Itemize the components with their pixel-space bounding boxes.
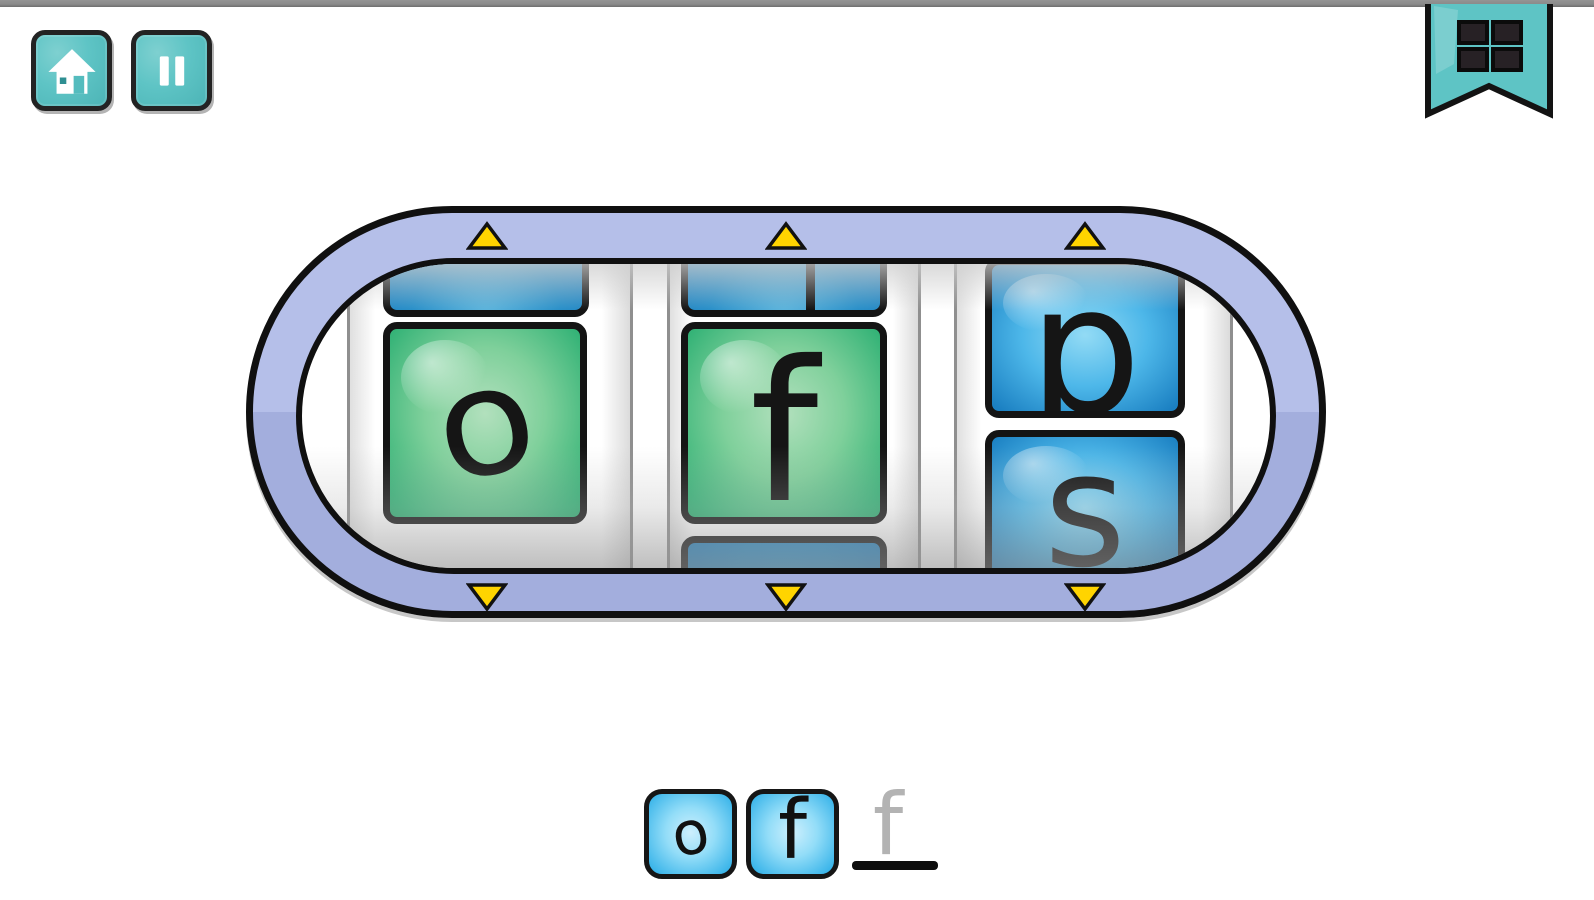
- reel1-down-arrow-button[interactable]: [466, 582, 508, 612]
- reel1-partial-tile-top[interactable]: [383, 258, 589, 317]
- down-arrow-icon: [765, 582, 807, 612]
- reel2-partial-tile-top[interactable]: [681, 258, 887, 317]
- reel3-up-arrow-button[interactable]: [1064, 221, 1106, 251]
- down-arrow-icon: [466, 582, 508, 612]
- answer-letter-1: o: [667, 801, 714, 866]
- hint-letter: f: [852, 782, 924, 868]
- home-button[interactable]: [31, 30, 112, 111]
- bookmark-menu-button[interactable]: [1424, 4, 1554, 124]
- game-screen: o f p s: [0, 0, 1594, 900]
- reel3-letter-bottom: s: [1044, 432, 1126, 574]
- reel-window: o f p s: [296, 258, 1276, 574]
- answer-letter-2: f: [778, 790, 807, 872]
- pause-icon: [146, 45, 198, 97]
- reel-wall: [918, 264, 921, 568]
- reel-wall: [630, 264, 633, 568]
- reel2-partial-tile-bottom[interactable]: [681, 536, 887, 574]
- answer-blank-underline: [852, 861, 938, 870]
- top-bar: [0, 0, 1594, 7]
- reel1-letter-tile[interactable]: o: [383, 322, 587, 524]
- answer-tile-1: o: [644, 789, 737, 879]
- reel2-up-arrow-button[interactable]: [765, 221, 807, 251]
- reel-wall: [954, 264, 957, 568]
- reel3-down-arrow-button[interactable]: [1064, 582, 1106, 612]
- letter-fragment: [806, 258, 815, 310]
- up-arrow-icon: [1064, 221, 1106, 251]
- reel1-up-arrow-button[interactable]: [466, 221, 508, 251]
- reel-wall: [347, 264, 350, 568]
- reel3-letter-top: p: [1029, 262, 1142, 418]
- reel1-letter: o: [422, 341, 548, 505]
- reel-wall: [1230, 264, 1233, 568]
- reel3-letter-tile-top[interactable]: p: [985, 258, 1185, 418]
- reel2-letter-tile[interactable]: f: [681, 322, 887, 524]
- home-icon: [46, 45, 98, 97]
- reel-wall: [667, 264, 670, 568]
- reel2-down-arrow-button[interactable]: [765, 582, 807, 612]
- pause-button[interactable]: [131, 30, 212, 111]
- reel2-letter: f: [750, 335, 819, 525]
- reel3-letter-tile-bottom[interactable]: s: [985, 430, 1185, 574]
- up-arrow-icon: [765, 221, 807, 251]
- answer-tile-2: f: [746, 789, 839, 879]
- up-arrow-icon: [466, 221, 508, 251]
- down-arrow-icon: [1064, 582, 1106, 612]
